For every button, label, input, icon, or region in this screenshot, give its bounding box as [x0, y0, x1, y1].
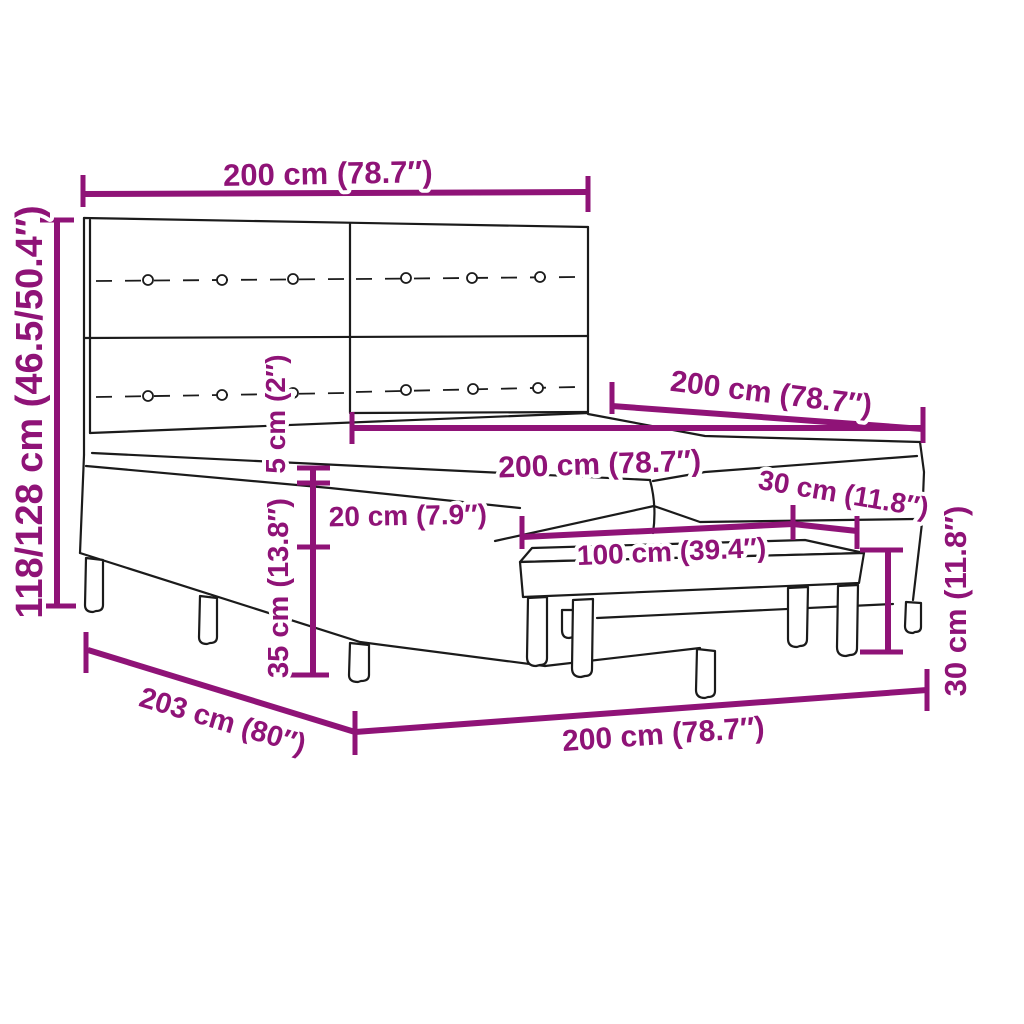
dimension-diagram-page: 200 cm (78.7″) 118/128 cm (46.5/50.4″) 2… — [0, 0, 1024, 1024]
bench-leg — [527, 597, 547, 666]
headboard-top-edge — [84, 218, 588, 227]
dim-label-base-length: 200 cm (78.7″) — [561, 711, 766, 758]
dim-label-overall-height: 118/128 cm (46.5/50.4″) — [9, 205, 51, 618]
bed-leg — [199, 596, 217, 644]
dim-label-mattress-thickness: 5 cm (2″) — [260, 354, 291, 473]
headboard-button — [143, 275, 153, 285]
dim-label-bench-depth: 30 cm (11.8″) — [756, 464, 931, 523]
headboard-button — [468, 384, 478, 394]
bed-left-front-edge — [80, 455, 84, 553]
bed-dimension-diagram: 200 cm (78.7″) 118/128 cm (46.5/50.4″) 2… — [0, 0, 1024, 1024]
headboard-button — [467, 273, 477, 283]
headboard-button — [217, 390, 227, 400]
dim-label-base-height: 20 cm (7.9″) — [328, 499, 487, 533]
bed-leg — [349, 643, 369, 682]
dim-label-leg-height: 35 cm (13.8″) — [263, 498, 295, 678]
headboard-button — [143, 391, 153, 401]
headboard-button — [401, 385, 411, 395]
bed-leg — [85, 558, 103, 612]
dim-label-bench-height: 30 cm (11.8″) — [938, 506, 973, 697]
dim-label-headboard-width: 200 cm (78.7″) — [223, 154, 433, 193]
bed-leg — [696, 649, 715, 698]
headboard-button — [288, 274, 298, 284]
dim-line-headboard-width — [83, 192, 588, 194]
dim-tick — [860, 550, 903, 652]
headboard-bottom-edge — [352, 412, 588, 413]
bench-leg — [572, 599, 593, 677]
bench-leg — [837, 585, 858, 656]
headboard-button — [217, 275, 227, 285]
headboard-button — [401, 273, 411, 283]
bed-leg — [905, 602, 921, 633]
headboard-button — [535, 272, 545, 282]
bench-leg — [788, 587, 808, 647]
headboard-panel-divider — [84, 336, 588, 338]
base-bottom-edge — [545, 648, 700, 666]
headboard-button — [533, 383, 543, 393]
